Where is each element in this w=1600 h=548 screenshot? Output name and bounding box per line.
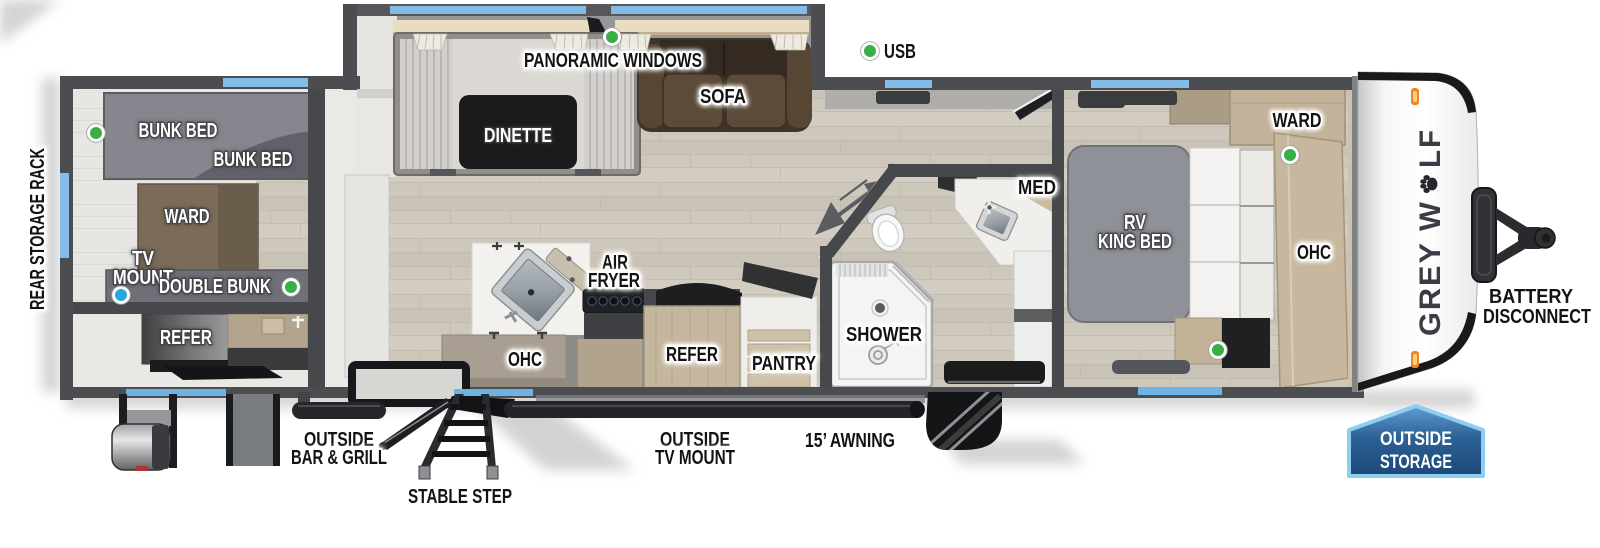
svg-text:BUNK BED: BUNK BED bbox=[214, 149, 293, 171]
svg-text:USB: USB bbox=[884, 41, 916, 63]
svg-text:DINETTE: DINETTE bbox=[484, 125, 552, 147]
svg-text:SHOWER: SHOWER bbox=[846, 324, 922, 346]
svg-text:OHC: OHC bbox=[1297, 242, 1331, 264]
svg-text:REFER: REFER bbox=[160, 327, 212, 349]
svg-text:STORAGE: STORAGE bbox=[1380, 452, 1452, 473]
svg-text:SOFA: SOFA bbox=[700, 86, 746, 108]
svg-text:REAR STORAGE RACK: REAR STORAGE RACK bbox=[27, 148, 49, 310]
svg-text:BATTERY: BATTERY bbox=[1489, 286, 1574, 308]
svg-text:GREY W: GREY W bbox=[1414, 200, 1447, 336]
svg-text:STABLE STEP: STABLE STEP bbox=[408, 486, 512, 508]
svg-text:WARD: WARD bbox=[1273, 110, 1322, 132]
svg-text:PANTRY: PANTRY bbox=[752, 353, 817, 375]
svg-text:OHC: OHC bbox=[508, 349, 542, 371]
svg-text:KING BED: KING BED bbox=[1098, 231, 1172, 253]
svg-text:TV MOUNT: TV MOUNT bbox=[655, 447, 735, 469]
svg-text:OUTSIDE: OUTSIDE bbox=[1380, 429, 1452, 450]
svg-text:LF: LF bbox=[1414, 128, 1447, 168]
svg-text:BAR & GRILL: BAR & GRILL bbox=[291, 447, 387, 469]
svg-text:MED: MED bbox=[1018, 177, 1056, 199]
svg-text:15’ AWNING: 15’ AWNING bbox=[805, 430, 895, 452]
svg-text:BUNK BED: BUNK BED bbox=[139, 120, 218, 142]
svg-text:FRYER: FRYER bbox=[588, 270, 640, 292]
svg-text:PANORAMIC WINDOWS: PANORAMIC WINDOWS bbox=[524, 50, 702, 72]
svg-text:DISCONNECT: DISCONNECT bbox=[1483, 306, 1591, 328]
svg-text:DOUBLE BUNK: DOUBLE BUNK bbox=[159, 276, 271, 298]
svg-text:REFER: REFER bbox=[666, 344, 718, 366]
svg-text:WARD: WARD bbox=[165, 206, 210, 228]
